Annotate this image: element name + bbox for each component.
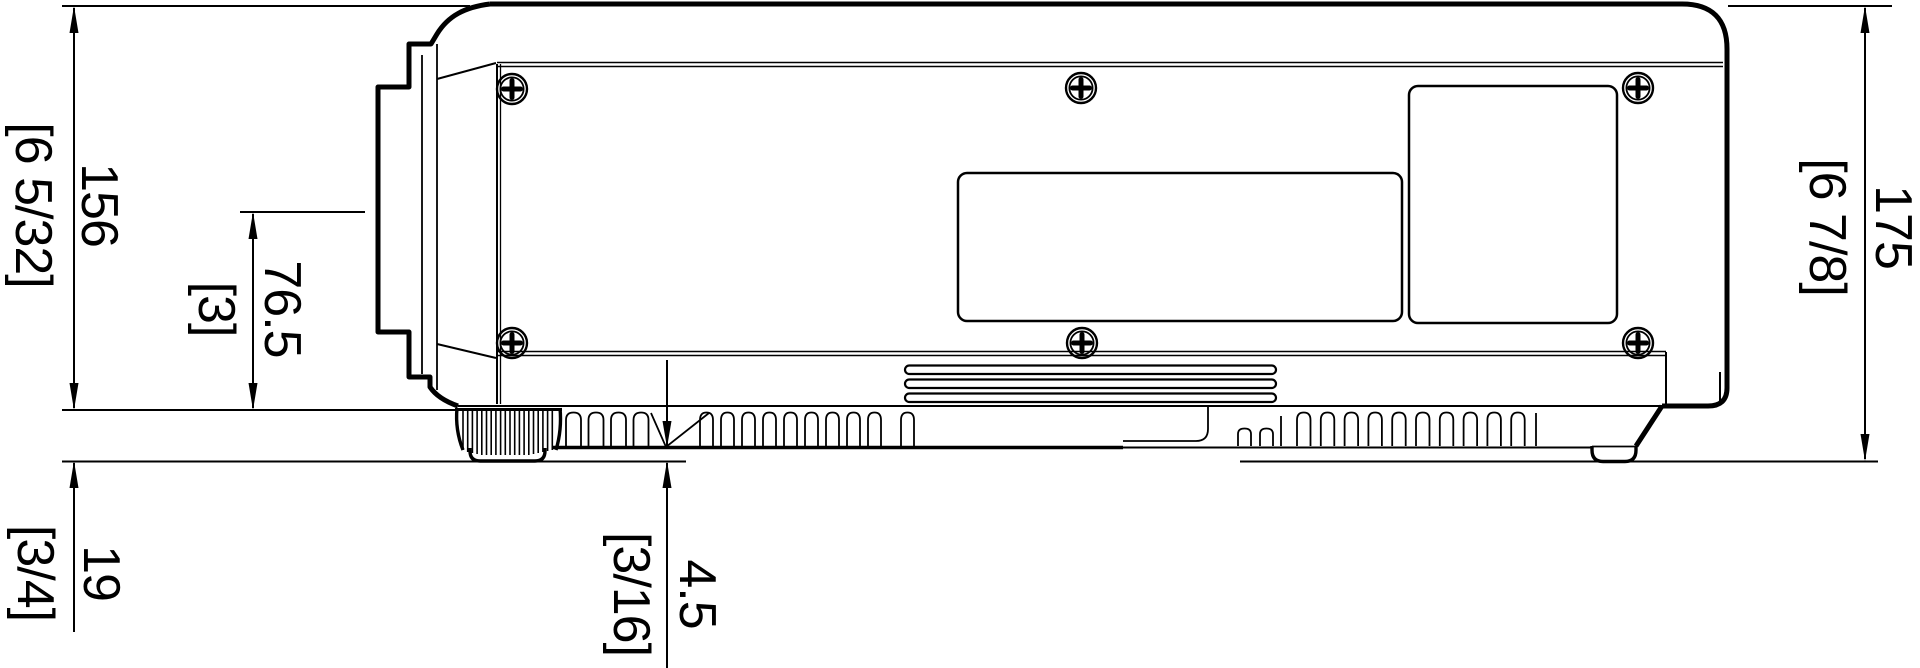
bottom-vent-strip: [553, 407, 1592, 448]
dimension-mm-value: 156: [66, 163, 132, 247]
lens-barrel: [422, 44, 496, 390]
foot-knurling: [463, 411, 552, 455]
side-vent-slats: [905, 366, 1276, 403]
dimension-lens-center-height: 76.5 [3]: [183, 260, 315, 357]
vent-slot-group-middle: [700, 413, 914, 448]
dimension-inches-value: [3]: [183, 282, 249, 337]
access-panels: [958, 86, 1617, 323]
dimension-inches-value: [3/16]: [598, 532, 664, 656]
rear-foot: [1592, 446, 1636, 462]
phillips-screw-icon: [1623, 328, 1653, 358]
phillips-screw-icon: [497, 328, 527, 358]
foot-right-edge: [556, 408, 561, 450]
rear-access-panel: [1409, 86, 1617, 323]
dimension-mm-value: 175: [1860, 185, 1920, 269]
phillips-screw-icon: [1066, 73, 1096, 103]
dimension-mm-value: 4.5: [664, 559, 730, 628]
dimension-inches-value: [6 5/32]: [0, 122, 66, 287]
projector-dimension-drawing: 156 [6 5/32] 76.5 [3] 175 [6 7/8] 19 [3/…: [0, 0, 1920, 668]
dimension-mm-value: 19: [68, 545, 134, 601]
dimension-arrowheads: [70, 6, 1870, 488]
front-adjustable-foot: [455, 408, 562, 461]
dimension-foot-height: 19 [3/4]: [2, 525, 134, 621]
phillips-screw-icon: [497, 74, 527, 104]
dimension-body-height: 156 [6 5/32]: [0, 122, 132, 287]
dimension-inches-value: [3/4]: [2, 525, 68, 621]
side-access-panel: [958, 173, 1402, 321]
rear-foot-pad: [1592, 446, 1636, 462]
phillips-screw-icon: [1623, 73, 1653, 103]
dimension-inches-value: [6 7/8]: [1794, 158, 1860, 296]
phillips-screw-icon: [1067, 328, 1097, 358]
foot-left-edge: [457, 408, 463, 450]
dimension-bottom-clearance: 4.5 [3/16]: [598, 532, 730, 656]
dimension-total-height: 175 [6 7/8]: [1794, 158, 1920, 296]
vent-slot-group-front: [566, 413, 649, 448]
dimension-mm-value: 76.5: [249, 260, 315, 357]
screws: [497, 73, 1653, 358]
vent-slot-group-rear: [1297, 413, 1525, 447]
vent-slot-group-small: [1238, 429, 1273, 447]
strip-step-seam: [1123, 407, 1208, 441]
